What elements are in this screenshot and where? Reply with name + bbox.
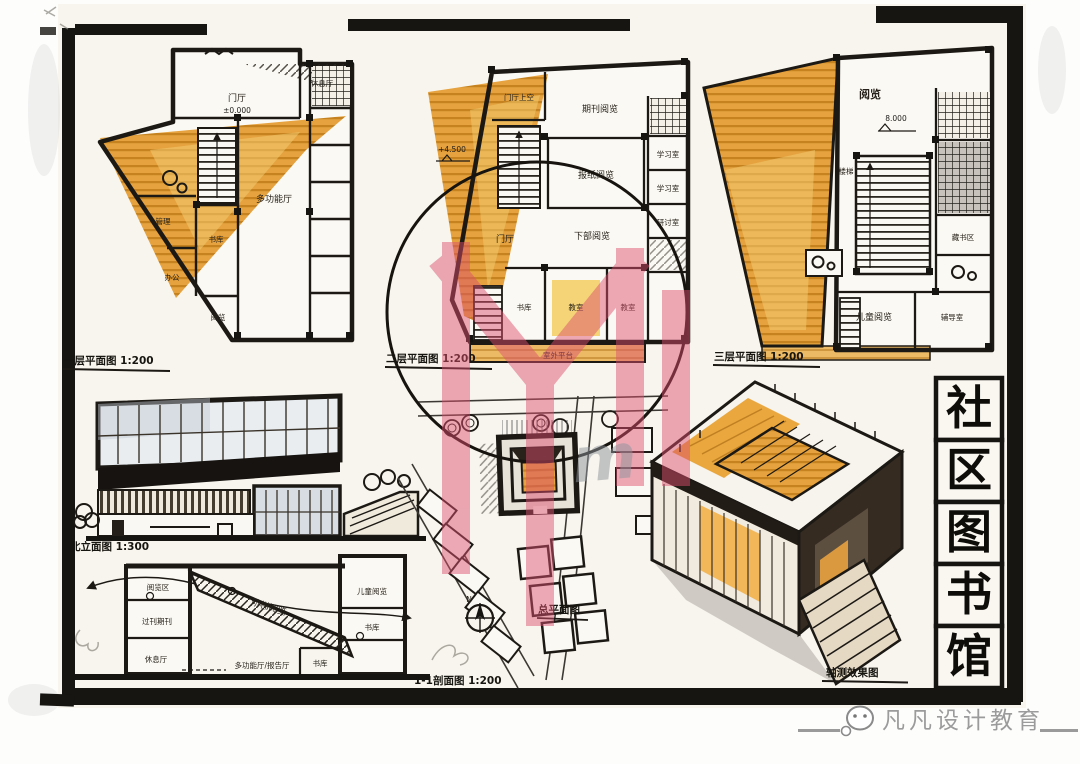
- section-label: 休息厅: [145, 654, 168, 664]
- axon-caption: 轴测效果图: [826, 666, 879, 679]
- room-label: 学习室: [657, 149, 680, 159]
- room-label: 阅览: [859, 87, 881, 101]
- level-note: ±0.000: [223, 106, 251, 115]
- floor2-bookshelf: [650, 98, 686, 134]
- brand-name: 凡凡设计教育: [882, 708, 1044, 734]
- floor3-bookshelf: [938, 92, 990, 138]
- title-block: 社 区 图 书 馆: [928, 378, 1016, 702]
- room-label: 楼梯: [839, 166, 854, 176]
- room-label: 书库: [209, 234, 224, 244]
- section-label: 书库: [365, 622, 380, 632]
- section-label: 儿童阅览: [357, 586, 387, 596]
- room-label: 办公: [165, 272, 180, 282]
- title-char: 社: [946, 381, 992, 435]
- board-drawing: 门厅 ±0.000 休息厅 多功能厅 书库 管理 办公 阅览 一层平面图 1:2…: [0, 0, 1080, 764]
- floor1-caption: 一层平面图 1:200: [64, 355, 154, 367]
- room-label: 学习室: [657, 183, 680, 193]
- presentation-board: 门厅 ±0.000 休息厅 多功能厅 书库 管理 办公 阅览 一层平面图 1:2…: [0, 0, 1080, 764]
- wechat-logo-icon: [842, 707, 874, 736]
- room-label: 书库: [517, 302, 532, 312]
- gray-monogram-watermark: m: [569, 419, 640, 497]
- north-label: N: [466, 595, 472, 604]
- title-char: 书: [946, 567, 992, 621]
- title-char: 图: [946, 505, 992, 559]
- room-label: 儿童阅览: [856, 311, 892, 323]
- floor3-stair: [856, 156, 930, 274]
- room-label: 门厅: [496, 233, 514, 245]
- brand-watermark: 凡凡设计教育: [798, 707, 1078, 736]
- title-char: 区: [946, 443, 992, 497]
- section-label: 阅览区: [147, 582, 170, 592]
- room-label: 多功能厅: [256, 193, 292, 205]
- room-label: 下部阅览: [574, 230, 610, 242]
- room-label: 门厅: [228, 92, 246, 104]
- room-label: 门厅上空: [504, 92, 534, 102]
- room-label: 休息厅: [311, 78, 334, 88]
- section-label: 多功能厅/报告厅: [234, 660, 290, 670]
- room-label: 阅览: [211, 312, 226, 322]
- section-caption: 1-1剖面图 1:200: [414, 674, 502, 687]
- section-label: 过刊期刊: [142, 616, 172, 626]
- elevation-book-band: [98, 490, 250, 514]
- section-label: 书库: [313, 658, 328, 668]
- floor3-caption: 三层平面图 1:200: [714, 351, 804, 363]
- room-label: 藏书区: [952, 232, 975, 242]
- level-note: +4.500: [438, 145, 466, 154]
- room-label: 期刊阅览: [582, 103, 618, 115]
- title-char: 馆: [946, 629, 992, 683]
- room-label: 辅导室: [941, 312, 964, 322]
- room-label: 管理: [156, 216, 171, 226]
- floor3-small-stair: [840, 298, 860, 348]
- level-note: 8.000: [885, 114, 907, 123]
- elevation-caption: 北立面图 1:300: [70, 540, 149, 553]
